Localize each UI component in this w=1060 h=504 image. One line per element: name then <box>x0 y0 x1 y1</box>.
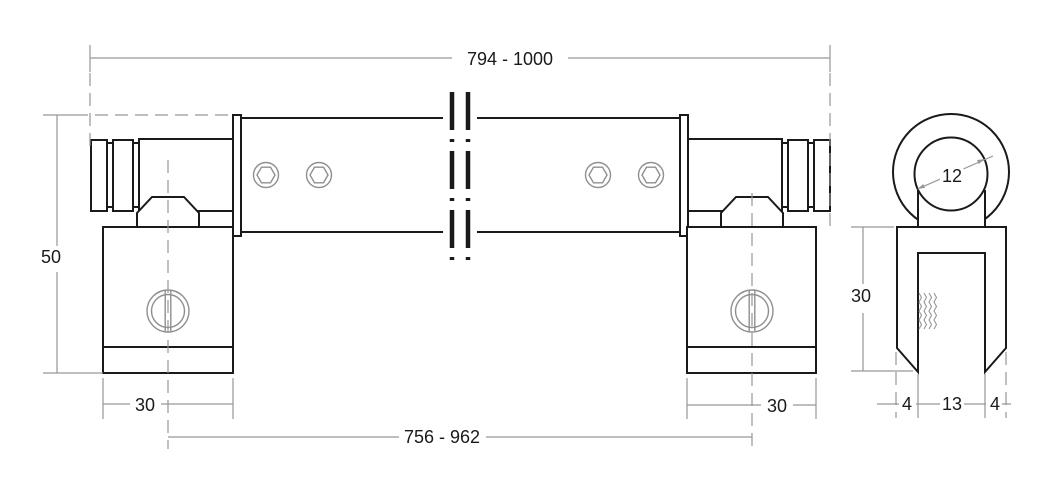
left-ridge-groove-2 <box>133 143 139 207</box>
right-ridge-band-outer <box>814 140 830 211</box>
total-height-label: 50 <box>41 247 61 267</box>
break-lines-icon <box>452 92 468 262</box>
right-wall-fitting <box>680 115 830 236</box>
overall-length-label: 794 - 1000 <box>467 49 553 69</box>
stabilizer-bar-technical-drawing: 794 - 1000 50 30 30 756 - 962 12 30 4 13… <box>0 0 1060 504</box>
right-clamp-width-label: 30 <box>767 396 787 416</box>
technical-drawing-canvas: 794 - 1000 50 30 30 756 - 962 12 30 4 13… <box>0 0 1060 504</box>
side-left-wall-label: 4 <box>902 394 912 414</box>
left-ridge-band-inner <box>113 140 133 211</box>
left-ridge-band-outer <box>91 140 107 211</box>
ring-diameter-label: 12 <box>942 166 962 186</box>
part-outlines <box>91 92 1009 373</box>
left-flange <box>233 115 241 236</box>
center-distance-label: 756 - 962 <box>404 427 480 447</box>
side-slot-width-label: 13 <box>942 394 962 414</box>
thread-icon <box>919 293 937 329</box>
hex-socket-screw-icons <box>254 163 664 188</box>
overall-length-dimension <box>90 45 830 72</box>
right-flange <box>680 115 688 236</box>
right-ridge-band-inner <box>788 140 808 211</box>
side-right-wall-label: 4 <box>990 394 1000 414</box>
hex-socket-icon <box>642 167 660 183</box>
left-clamp-width-label: 30 <box>135 395 155 415</box>
hex-socket-icon <box>589 167 607 183</box>
hex-socket-icon <box>257 167 275 183</box>
u-clamp-profile <box>897 227 1006 372</box>
hex-socket-icon <box>310 167 328 183</box>
left-wall-fitting <box>91 115 241 236</box>
side-height-label: 30 <box>851 286 871 306</box>
side-view <box>893 114 1009 372</box>
